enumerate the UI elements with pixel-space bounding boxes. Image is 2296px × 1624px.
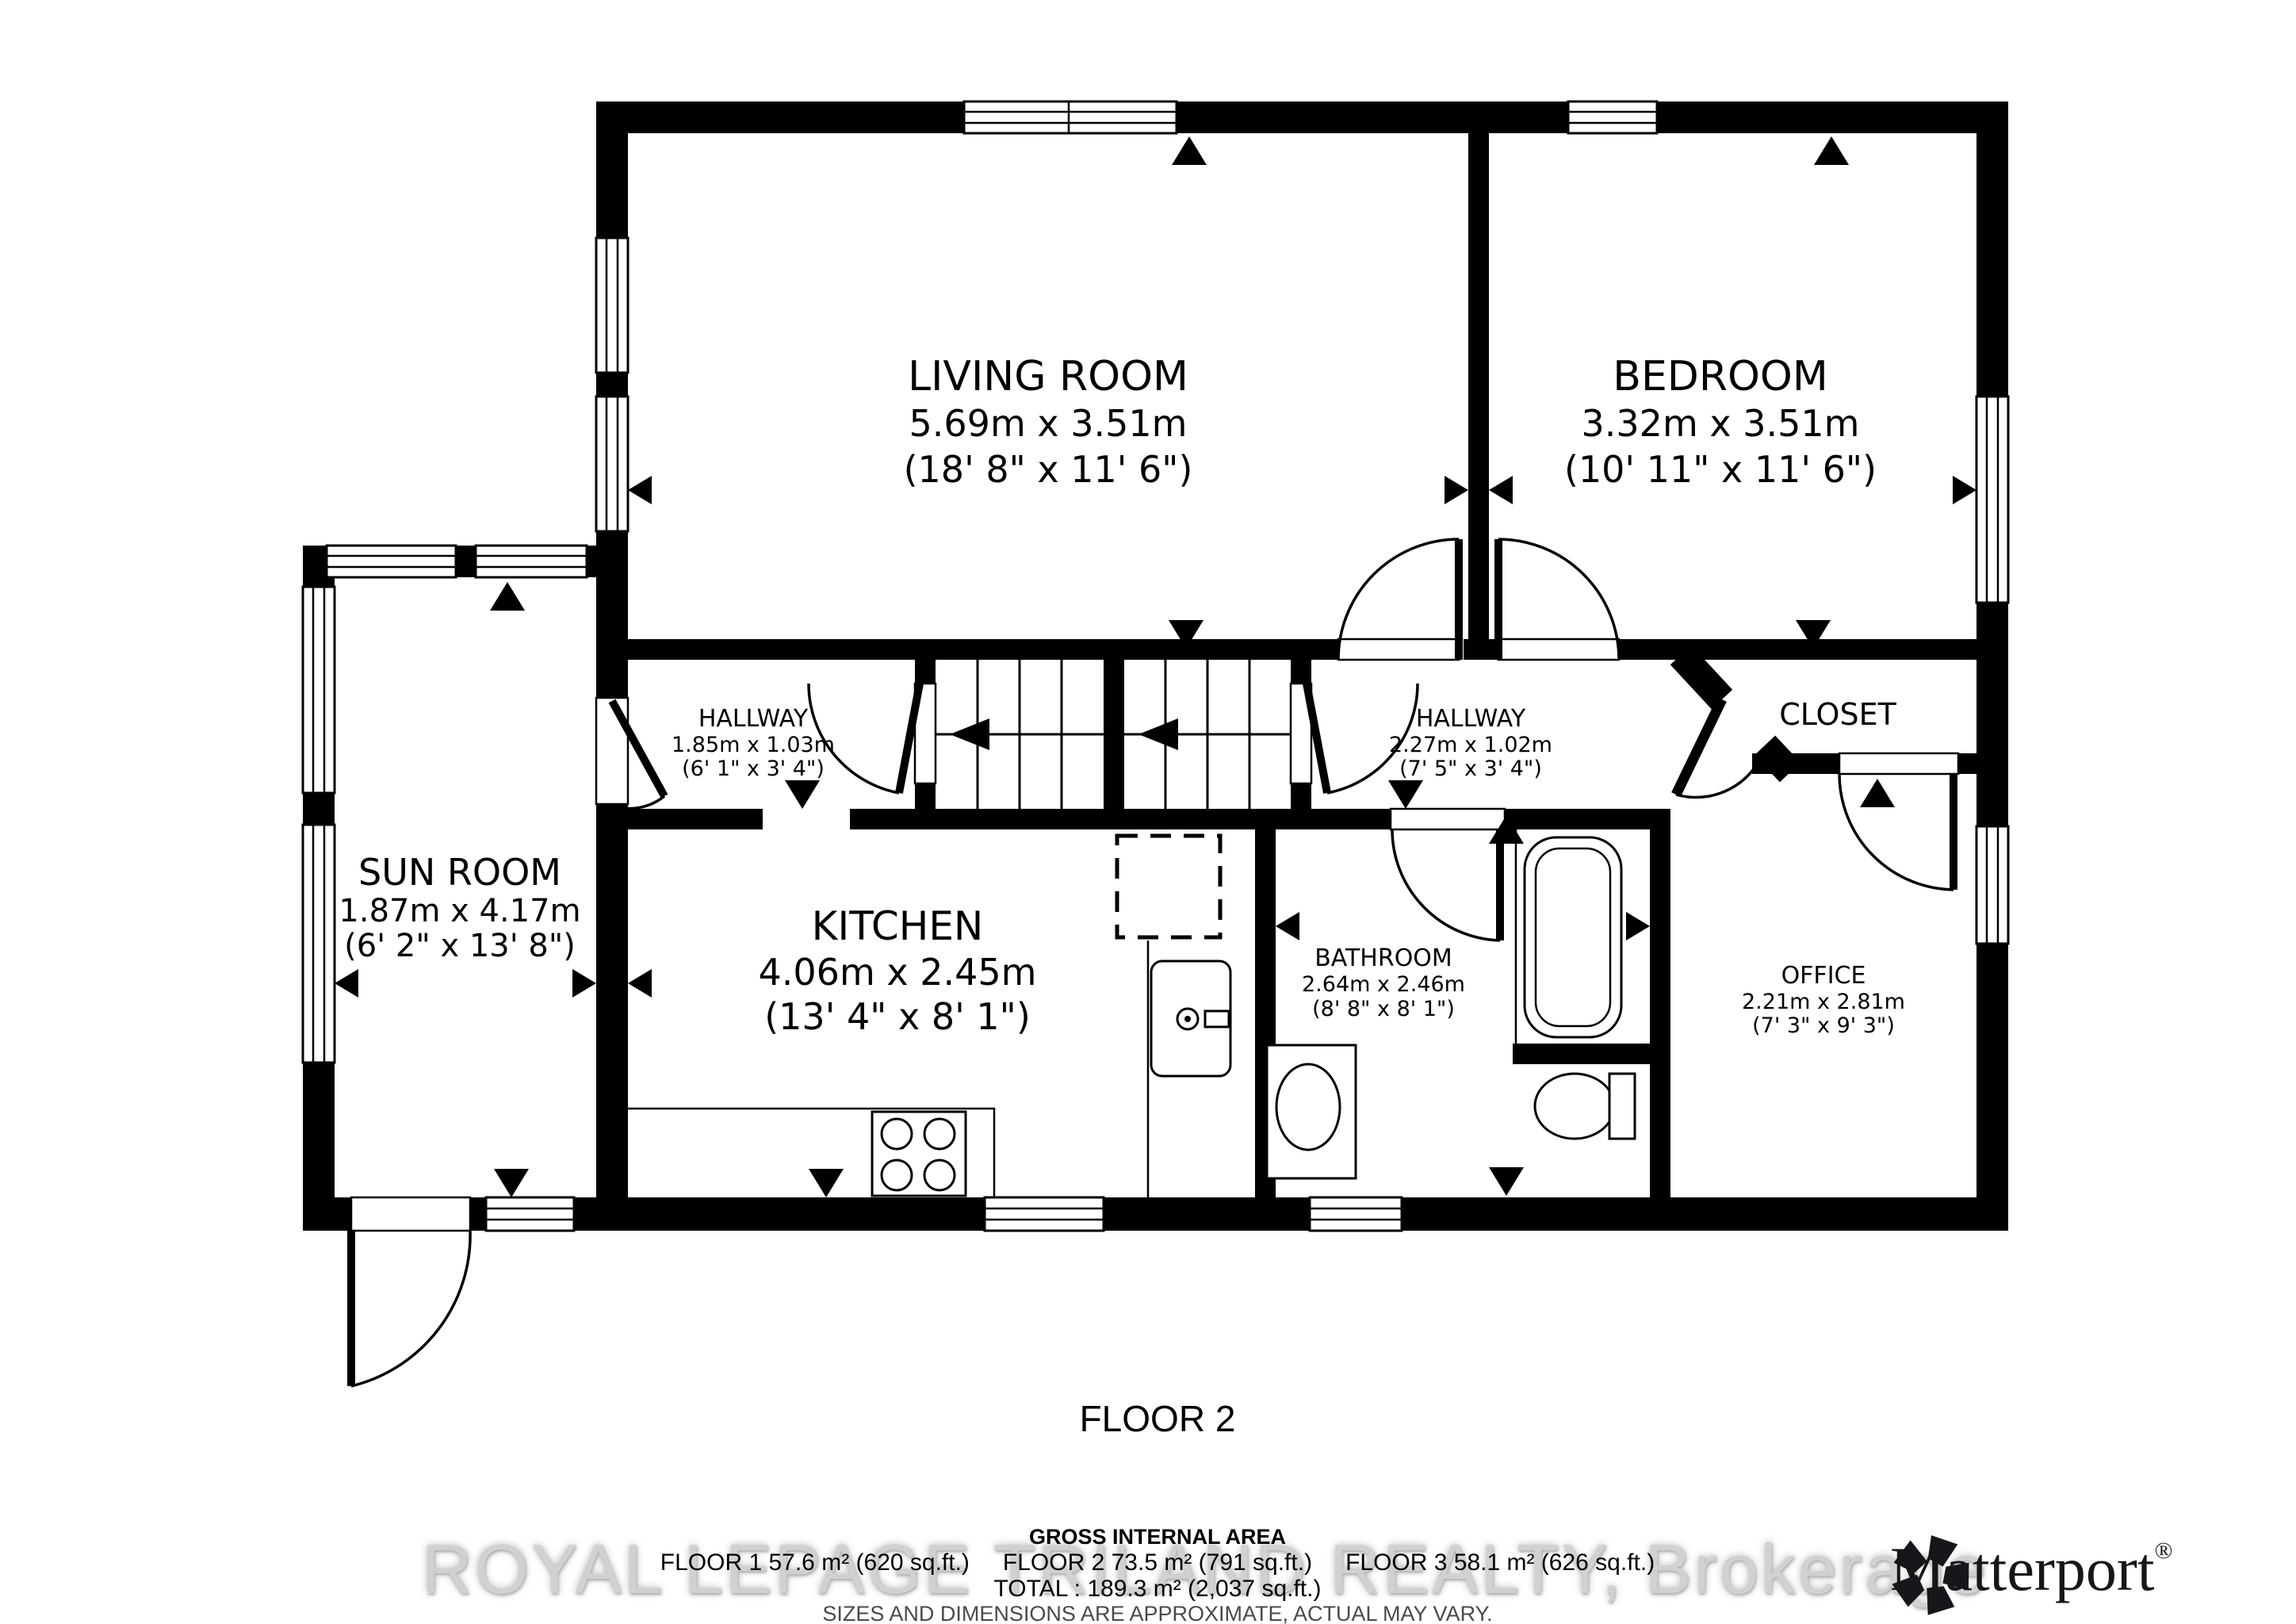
matterport-logo: Matterport® — [1890, 1534, 2172, 1605]
living-room-label: LIVING ROOM 5.69m x 3.51m (18' 8" x 11' … — [904, 353, 1193, 491]
bathroom-sink-icon — [1267, 1045, 1356, 1178]
kitchen-name: KITCHEN — [812, 903, 984, 949]
kitchen-sink-icon — [1151, 961, 1230, 1076]
window-sunroom-left-a — [303, 587, 335, 793]
window-living-left-b — [596, 396, 628, 531]
hallway-left-name: HALLWAY — [698, 705, 809, 733]
wall-hall-bottom-c — [1505, 809, 1670, 829]
wall-stair-left-top — [915, 660, 936, 684]
wall-main-left-mid — [596, 577, 628, 698]
window-living-top — [964, 101, 1177, 133]
window-sunroom-bottom — [486, 1197, 574, 1231]
wall-stair-center — [1104, 660, 1124, 809]
wall-stair-right-top — [1291, 660, 1311, 684]
hallway-right-imperial: (7' 5" x 3' 4") — [1399, 756, 1542, 781]
arrow-hallway-right — [1388, 780, 1423, 809]
window-bedroom-top — [1568, 101, 1657, 133]
bedroom-imperial: (10' 11" x 11' 6") — [1564, 448, 1877, 491]
floor3-area: FLOOR 3 58.1 m² (626 sq.ft.) — [1345, 1549, 1655, 1576]
gross-internal-area-title: GROSS INTERNAL AREA — [563, 1524, 1752, 1549]
arrow-kitchen-bottom — [809, 1169, 844, 1197]
window-sunroom-top-a — [327, 546, 456, 577]
arrow-bedroom-top — [1814, 136, 1849, 165]
hallway-left-label: HALLWAY 1.85m x 1.03m (6' 1" x 3' 4") — [672, 705, 835, 781]
door-sunroom-hallway — [596, 698, 664, 809]
wall-right — [1976, 101, 2008, 1231]
bathroom-metric: 2.64m x 2.46m — [1302, 972, 1465, 997]
arrow-sunroom-top — [490, 582, 525, 611]
door-closet — [1676, 699, 1765, 798]
office-name: OFFICE — [1781, 962, 1866, 990]
arrow-divider-right — [1489, 476, 1513, 504]
living-room-imperial: (18' 8" x 11' 6") — [904, 448, 1193, 491]
living-room-metric: 5.69m x 3.51m — [909, 402, 1188, 445]
bedroom-label: BEDROOM 3.32m x 3.51m (10' 11" x 11' 6") — [1564, 353, 1877, 491]
arrow-kitchen-left-wall — [628, 969, 652, 998]
bathroom-name: BATHROOM — [1314, 944, 1452, 972]
bathtub-icon — [1525, 837, 1621, 1037]
bedroom-metric: 3.32m x 3.51m — [1582, 402, 1860, 445]
door-sunroom-exterior — [351, 1197, 470, 1386]
arrow-bedroom-right-wall — [1953, 476, 1976, 504]
stairs-direction-arrow-left-run — [950, 718, 989, 750]
stairs-direction-arrow-right-run — [1138, 718, 1178, 750]
floorplan-page: ROYAL LEPAGE TRILAND REALTY, Brokerage — [0, 0, 2296, 1624]
floor1-area: FLOOR 1 57.6 m² (620 sq.ft.) — [660, 1549, 970, 1576]
living-room-name: LIVING ROOM — [908, 353, 1188, 400]
wall-stair-right-bottom — [1291, 783, 1311, 809]
wall-hall-top-a — [628, 639, 1341, 660]
sunroom-imperial: (6' 2" x 13' 8") — [344, 928, 576, 964]
wall-closet-diagonal-b — [1765, 745, 1790, 772]
door-bedroom — [1498, 539, 1619, 660]
wall-closet-bottom-b — [1958, 753, 2008, 774]
window-kitchen-bottom — [985, 1197, 1104, 1231]
closet-label: CLOSET — [1779, 697, 1896, 732]
arrow-sunroom-left-wall — [335, 969, 358, 998]
hallway-left-imperial: (6' 1" x 3' 4") — [682, 756, 825, 781]
window-bathroom-bottom — [1310, 1197, 1402, 1231]
sunroom-name: SUN ROOM — [358, 851, 561, 894]
stove-icon — [872, 1112, 966, 1196]
window-living-left-a — [596, 238, 628, 373]
total-area: TOTAL : 189.3 m² (2,037 sq.ft.) — [563, 1576, 1752, 1602]
wall-hall-top-b — [1464, 639, 1498, 660]
bedroom-name: BEDROOM — [1613, 353, 1827, 400]
arrow-bathroom-right-wall — [1626, 912, 1650, 940]
office-imperial: (7' 3" x 9' 3") — [1752, 1013, 1895, 1038]
kitchen-label: KITCHEN 4.06m x 2.45m (13' 4" x 8' 1") — [759, 903, 1037, 1038]
toilet-icon — [1535, 1074, 1635, 1139]
arrow-hallway-left — [785, 780, 820, 809]
wall-top — [596, 101, 2008, 133]
dashed-opening — [1117, 836, 1220, 937]
kitchen-imperial: (13' 4" x 8' 1") — [764, 995, 1031, 1038]
arrow-office-door — [1860, 779, 1895, 807]
wall-closet-diagonal-a — [1681, 655, 1722, 699]
footer: GROSS INTERNAL AREA FLOOR 1 57.6 m² (620… — [563, 1524, 1752, 1624]
sunroom-label: SUN ROOM 1.87m x 4.17m (6' 2" x 13' 8") — [339, 851, 580, 964]
disclaimer: SIZES AND DIMENSIONS ARE APPROXIMATE, AC… — [563, 1602, 1752, 1624]
floor-areas-line: FLOOR 1 57.6 m² (620 sq.ft.)FLOOR 2 73.5… — [563, 1549, 1752, 1576]
arrow-sunroom-door — [494, 1169, 529, 1197]
door-living-room — [1338, 539, 1459, 660]
wall-stair-left-bottom — [915, 783, 936, 809]
wall-hall-bottom-b — [850, 809, 1391, 829]
office-metric: 2.21m x 2.81m — [1742, 990, 1905, 1014]
kitchen-metric: 4.06m x 2.45m — [759, 951, 1037, 994]
bathroom-label: BATHROOM 2.64m x 2.46m (8' 8" x 8' 1") — [1302, 944, 1465, 1021]
hallway-right-name: HALLWAY — [1416, 705, 1526, 733]
matterport-icon — [1890, 1534, 1973, 1616]
wall-office-left — [1650, 809, 1670, 1197]
arrow-living-left-wall — [628, 476, 652, 504]
door-office — [1839, 753, 1958, 890]
floor-label: FLOOR 2 — [1080, 1398, 1236, 1439]
sunroom-metric: 1.87m x 4.17m — [339, 893, 580, 929]
window-office-right — [1976, 826, 2008, 944]
arrow-bathroom-bottom — [1489, 1167, 1524, 1196]
window-sunroom-top-b — [476, 546, 587, 577]
hallway-right-metric: 2.27m x 1.02m — [1389, 733, 1552, 757]
arrow-bathroom-left-wall — [1276, 912, 1299, 940]
arrow-living-top — [1172, 136, 1207, 165]
wall-tub-alcove — [1513, 1044, 1650, 1064]
bathroom-imperial: (8' 8" x 8' 1") — [1312, 997, 1455, 1021]
wall-living-bedroom-divider — [1468, 133, 1489, 639]
door-bathroom — [1391, 809, 1505, 940]
arrow-sunroom-right-wall — [572, 969, 596, 998]
office-label: OFFICE 2.21m x 2.81m (7' 3" x 9' 3") — [1742, 962, 1905, 1038]
window-sunroom-left-b — [303, 825, 335, 1063]
arrow-divider-left — [1445, 476, 1468, 504]
hallway-left-metric: 1.85m x 1.03m — [672, 733, 835, 757]
wall-main-left-lower — [596, 804, 628, 1197]
registered-mark: ® — [2155, 1538, 2173, 1564]
floorplan-drawing: LIVING ROOM 5.69m x 3.51m (18' 8" x 11' … — [0, 0, 2296, 1624]
floor2-area: FLOOR 2 73.5 m² (791 sq.ft.) — [1003, 1549, 1312, 1576]
window-bedroom-right — [1976, 396, 2008, 603]
wall-hall-bottom-a — [628, 809, 763, 829]
closet-name: CLOSET — [1779, 697, 1896, 732]
